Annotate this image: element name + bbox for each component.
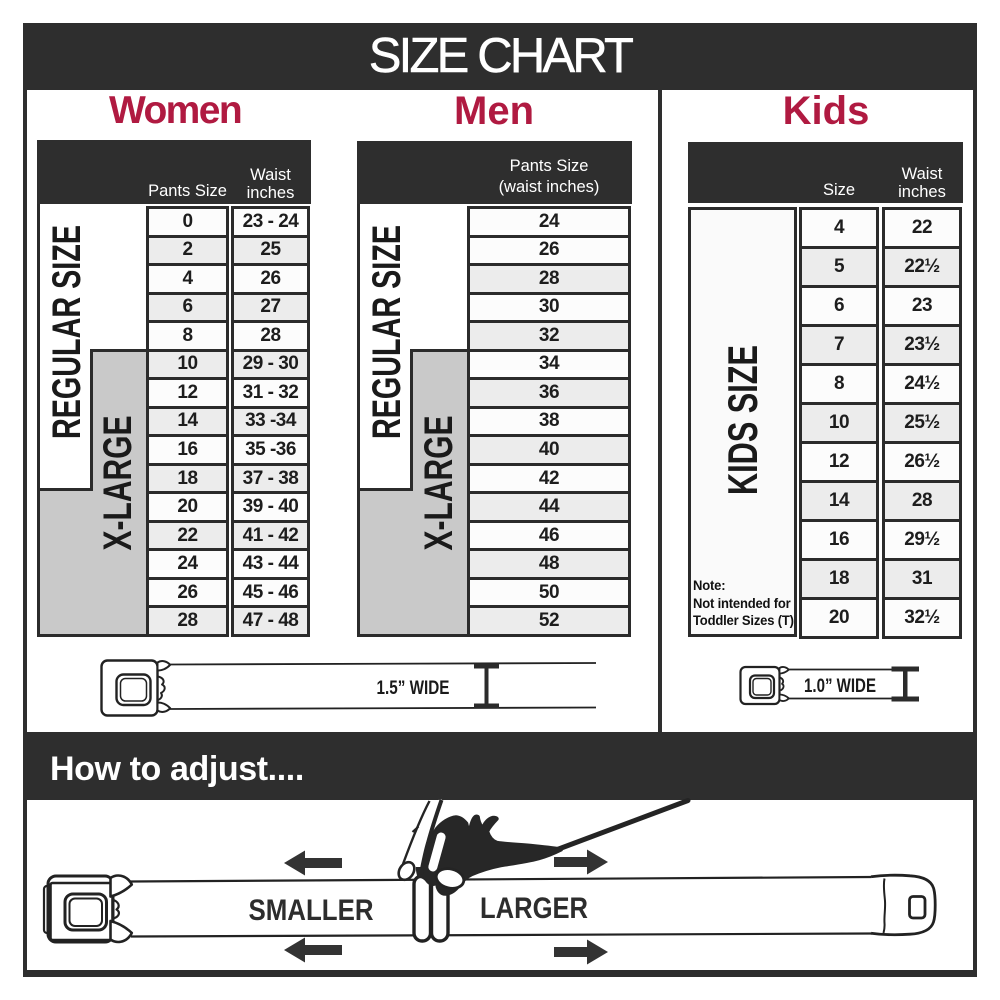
svg-text:KIDS SIZE: KIDS SIZE [719,345,766,495]
svg-text:SMALLER: SMALLER [249,894,374,927]
svg-text:REGULAR SIZE: REGULAR SIZE [45,225,89,439]
svg-text:LARGER: LARGER [480,892,588,925]
svg-text:1.5” WIDE: 1.5” WIDE [377,678,450,699]
svg-text:X-LARGE: X-LARGE [417,416,461,551]
svg-text:REGULAR SIZE: REGULAR SIZE [365,225,409,439]
svg-text:1.0” WIDE: 1.0” WIDE [804,676,876,697]
svg-text:X-LARGE: X-LARGE [96,416,140,551]
